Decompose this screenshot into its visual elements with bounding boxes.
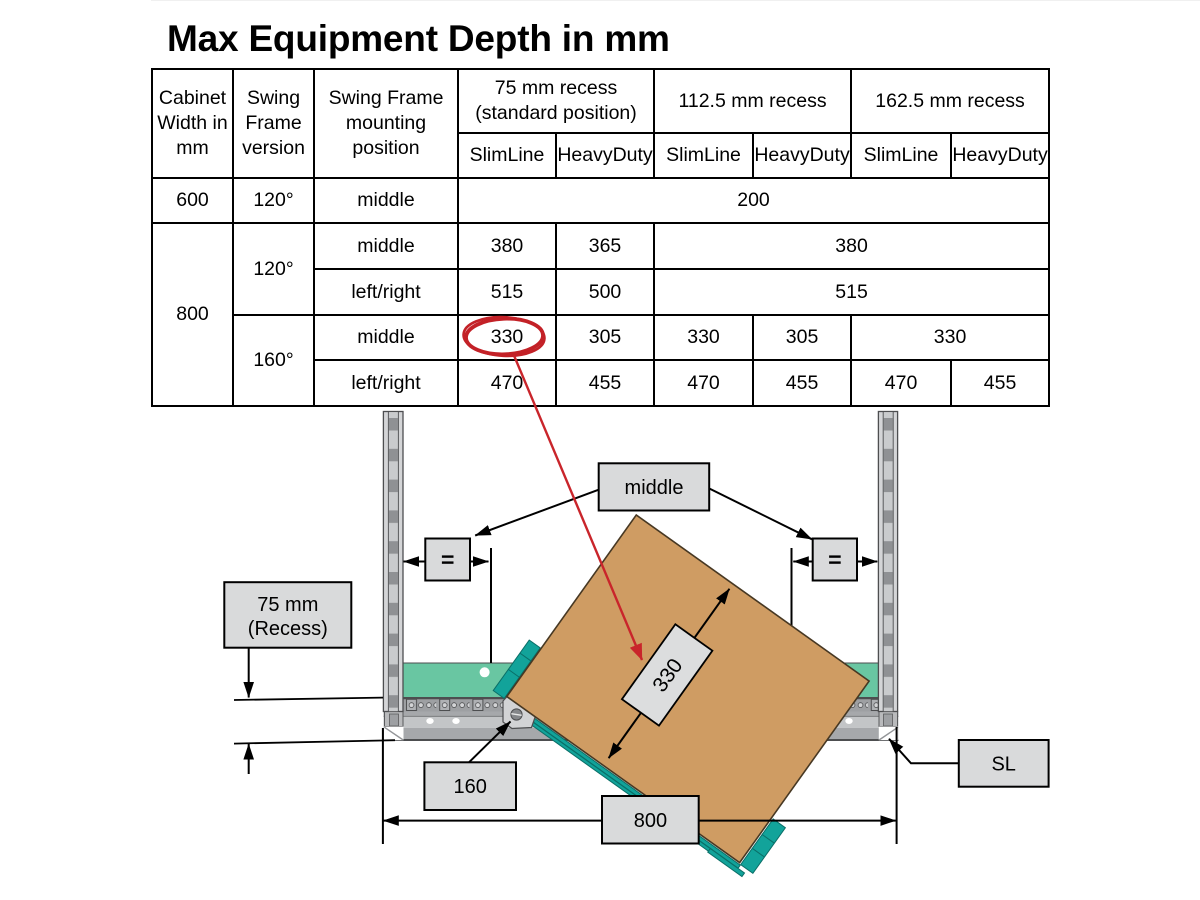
svg-text:75 mm: 75 mm bbox=[257, 594, 318, 616]
svg-text:800: 800 bbox=[634, 810, 667, 832]
svg-text:SL: SL bbox=[991, 754, 1015, 776]
svg-text:160: 160 bbox=[454, 776, 487, 798]
svg-text:(Recess): (Recess) bbox=[248, 618, 328, 640]
svg-text:middle: middle bbox=[625, 477, 684, 499]
